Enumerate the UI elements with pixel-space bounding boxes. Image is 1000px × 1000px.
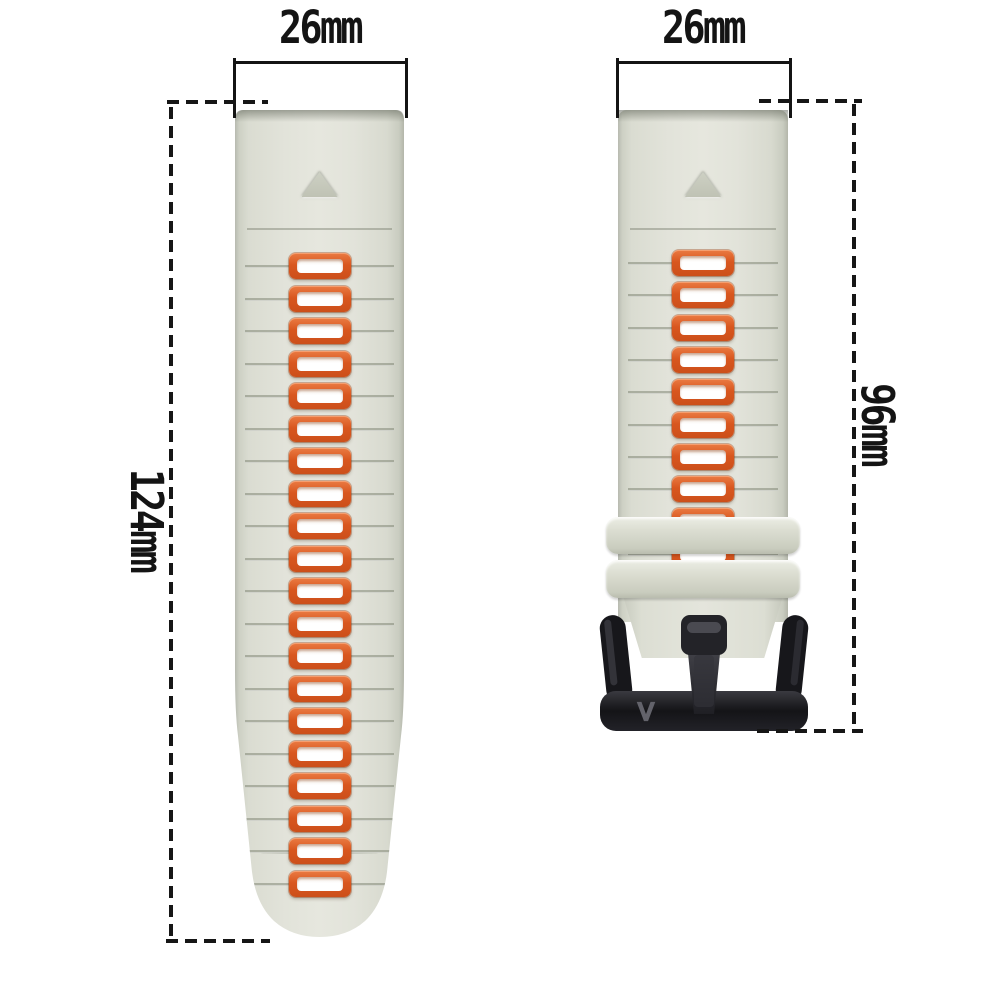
strap-adjustment-hole-opening <box>680 450 726 464</box>
strap-adjustment-hole-opening <box>680 353 726 367</box>
strap-adjustment-hole <box>289 253 351 279</box>
strap-adjustment-hole-opening <box>297 519 343 533</box>
strap-adjustment-hole-opening <box>297 454 343 468</box>
strap-adjustment-hole <box>672 250 734 276</box>
strap-keeper-loop <box>606 560 800 598</box>
strap-adjustment-hole-opening <box>297 617 343 631</box>
strap-adjustment-hole-opening <box>680 482 726 496</box>
strap-adjustment-hole-opening <box>680 418 726 432</box>
strap-adjustment-hole-opening <box>297 389 343 403</box>
right-width-dimension-line <box>617 61 791 64</box>
watch-band-product-photo: 26mm 124mm 26mm 96mm <box>0 0 1000 1000</box>
strap-groove <box>247 228 392 230</box>
strap-adjustment-hole <box>289 416 351 442</box>
strap-adjustment-hole <box>289 741 351 767</box>
strap-adjustment-hole-opening <box>297 877 343 891</box>
strap-adjustment-hole-opening <box>297 682 343 696</box>
strap-adjustment-hole-opening <box>680 321 726 335</box>
left-strap-top-edge <box>235 110 404 122</box>
right-length-extension-bottom <box>757 729 863 733</box>
strap-adjustment-hole-opening <box>297 292 343 306</box>
strap-adjustment-hole <box>289 351 351 377</box>
right-strap-top-edge <box>618 110 788 122</box>
strap-adjustment-hole <box>289 286 351 312</box>
left-strap-width-label: 26mm <box>235 4 405 52</box>
strap-adjustment-hole-opening <box>297 552 343 566</box>
strap-adjustment-hole-opening <box>680 288 726 302</box>
alignment-triangle-marker-icon <box>685 172 721 197</box>
left-width-dimension-line <box>234 61 408 64</box>
strap-adjustment-hole-opening <box>297 259 343 273</box>
left-width-tick-left <box>233 58 236 118</box>
strap-adjustment-hole-opening <box>297 844 343 858</box>
strap-adjustment-hole <box>289 546 351 572</box>
strap-adjustment-hole-opening <box>297 487 343 501</box>
strap-adjustment-hole-opening <box>297 584 343 598</box>
buckle: V <box>598 613 810 733</box>
strap-adjustment-hole <box>672 412 734 438</box>
strap-adjustment-hole-opening <box>680 385 726 399</box>
left-length-extension-top <box>167 100 268 104</box>
alignment-triangle-marker-icon <box>302 172 338 197</box>
strap-adjustment-hole-opening <box>297 422 343 436</box>
strap-adjustment-hole-opening <box>297 357 343 371</box>
right-length-extension-top <box>759 99 862 103</box>
right-strap-width-label: 26mm <box>618 4 788 52</box>
strap-adjustment-hole-opening <box>297 324 343 338</box>
buckle-v-logo: V <box>638 700 654 726</box>
strap-adjustment-hole <box>672 347 734 373</box>
strap-adjustment-hole <box>289 383 351 409</box>
strap-keeper-loop <box>606 517 800 554</box>
strap-adjustment-hole <box>289 448 351 474</box>
strap-adjustment-hole <box>672 444 734 470</box>
strap-adjustment-hole <box>289 806 351 832</box>
strap-adjustment-hole <box>289 708 351 734</box>
left-strap <box>235 110 404 937</box>
strap-adjustment-hole <box>289 838 351 864</box>
strap-adjustment-hole <box>289 318 351 344</box>
right-width-tick-left <box>616 58 619 118</box>
strap-adjustment-hole <box>672 379 734 405</box>
strap-adjustment-hole-opening <box>297 812 343 826</box>
strap-adjustment-hole <box>672 476 734 502</box>
left-width-tick-right <box>405 58 408 118</box>
strap-adjustment-hole-opening <box>680 256 726 270</box>
strap-adjustment-hole <box>289 871 351 897</box>
left-length-extension-bottom <box>166 939 270 943</box>
strap-adjustment-hole-opening <box>297 649 343 663</box>
strap-adjustment-hole <box>289 643 351 669</box>
strap-adjustment-hole <box>289 676 351 702</box>
strap-adjustment-hole <box>289 513 351 539</box>
right-strap-length-label: 96mm <box>851 331 903 518</box>
strap-adjustment-hole-opening <box>297 779 343 793</box>
strap-adjustment-hole <box>672 315 734 341</box>
strap-adjustment-hole <box>289 578 351 604</box>
left-strap-length-label: 124mm <box>120 427 172 614</box>
strap-adjustment-hole <box>672 282 734 308</box>
strap-groove <box>630 228 776 230</box>
strap-adjustment-hole-opening <box>297 714 343 728</box>
right-width-tick-right <box>789 58 792 118</box>
strap-adjustment-hole <box>289 773 351 799</box>
strap-adjustment-hole <box>289 611 351 637</box>
strap-adjustment-hole <box>289 481 351 507</box>
strap-adjustment-hole-opening <box>297 747 343 761</box>
